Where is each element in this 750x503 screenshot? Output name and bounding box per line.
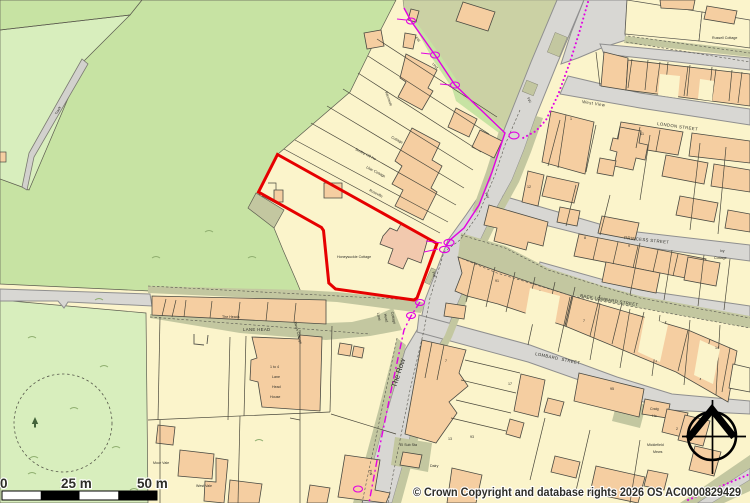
svg-text:25 m: 25 m [61, 476, 92, 491]
svg-text:© Crown Copyright and database: © Crown Copyright and database rights 20… [413, 487, 741, 499]
svg-text:50 m: 50 m [137, 476, 168, 491]
svg-text:7: 7 [583, 319, 585, 323]
svg-text:The Heads: The Heads [222, 315, 240, 319]
svg-text:9: 9 [628, 244, 630, 248]
svg-text:1: 1 [570, 117, 572, 121]
svg-text:Russell Cottage: Russell Cottage [712, 36, 737, 40]
svg-text:Lane: Lane [272, 375, 280, 379]
svg-text:41: 41 [640, 132, 644, 136]
svg-text:LANE HEAD: LANE HEAD [243, 327, 271, 332]
svg-text:12: 12 [527, 185, 531, 189]
svg-text:17: 17 [508, 382, 512, 386]
svg-text:Cottage: Cottage [714, 256, 727, 260]
svg-text:Ivy: Ivy [720, 249, 725, 253]
svg-text:7: 7 [445, 359, 447, 363]
svg-text:Ho: Ho [652, 414, 657, 418]
svg-text:95: 95 [610, 387, 614, 391]
svg-text:Moor Vale: Moor Vale [153, 461, 169, 465]
svg-text:1 to 4: 1 to 4 [270, 365, 279, 369]
svg-text:House: House [270, 395, 280, 399]
svg-text:8: 8 [584, 236, 586, 240]
svg-text:Craig: Craig [650, 407, 659, 411]
svg-text:2: 2 [676, 427, 678, 431]
svg-text:14: 14 [715, 346, 719, 350]
svg-text:El Sub Sta: El Sub Sta [400, 443, 417, 447]
svg-text:Dairy: Dairy [430, 464, 439, 468]
svg-text:Honeysuckle Cottage: Honeysuckle Cottage [337, 255, 371, 259]
svg-text:0: 0 [0, 476, 8, 491]
svg-text:Micklefield: Micklefield [647, 443, 664, 447]
svg-text:93: 93 [470, 435, 474, 439]
svg-text:West Vale: West Vale [196, 484, 212, 488]
svg-text:13: 13 [448, 437, 452, 441]
svg-text:Mews: Mews [653, 450, 663, 454]
svg-text:91: 91 [495, 279, 499, 283]
svg-text:Head: Head [272, 385, 281, 389]
